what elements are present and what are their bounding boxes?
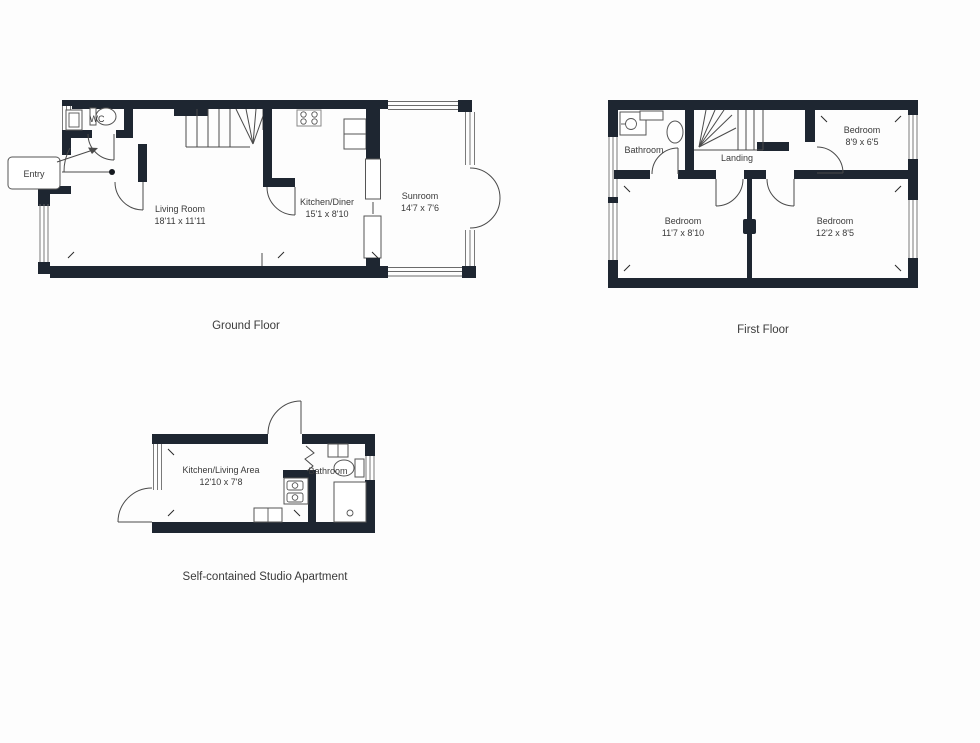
bedroom-left-door xyxy=(716,179,743,206)
sunroom-label: Sunroom xyxy=(402,191,439,201)
studio-sink-unit-icon xyxy=(284,478,308,504)
living-room-label: Living Room xyxy=(155,204,205,214)
bedroom-left-label: Bedroom xyxy=(665,216,702,226)
studio-bath-sink-icon xyxy=(328,444,348,457)
ground-floor-plan: Entry xyxy=(8,100,500,332)
entry-label: Entry xyxy=(23,169,45,179)
studio-kitchen-dims: 12'10 x 7'8 xyxy=(200,477,243,487)
floorplan-page: Entry xyxy=(0,0,980,743)
hall-door xyxy=(115,182,143,210)
first-floor-caption: First Floor xyxy=(737,324,789,336)
studio-plan: Kitchen/Living Area 12'10 x 7'8 Bathroom… xyxy=(118,401,376,583)
studio-shower-icon xyxy=(334,482,366,522)
living-room-dims: 18'11 x 11'11 xyxy=(155,216,206,226)
sunroom-windows xyxy=(388,100,476,278)
bedroom-left-dims: 11'7 x 8'10 xyxy=(662,228,704,238)
bedroom-right-dims: 12'2 x 8'5 xyxy=(816,228,854,238)
studio-caption: Self-contained Studio Apartment xyxy=(183,571,349,583)
wc-label: WC xyxy=(90,114,105,124)
studio-top-door xyxy=(268,401,301,434)
sunroom-french-doors xyxy=(470,168,500,228)
studio-entrance-door xyxy=(118,488,152,522)
studio-kitchen-label: Kitchen/Living Area xyxy=(182,465,259,475)
first-floor-plan: Bathroom Landing Bedroom 8'9 x 6'5 Bedro… xyxy=(607,100,919,336)
entry-callout: Entry xyxy=(8,148,98,190)
studio-counter-icon xyxy=(254,508,282,522)
hob-icon xyxy=(297,110,321,126)
bedroom-right-door xyxy=(767,179,794,206)
floorplan-canvas: Entry xyxy=(0,0,980,743)
bathroom-label-first: Bathroom xyxy=(624,145,663,155)
sunroom-dims: 14'7 x 7'6 xyxy=(401,203,439,213)
kitchen-door xyxy=(267,187,295,215)
bedroom-right-label: Bedroom xyxy=(817,216,854,226)
stairs-icon xyxy=(174,109,263,147)
studio-bathroom-label: Bathroom xyxy=(308,466,347,476)
bedroom-small-label: Bedroom xyxy=(844,125,881,135)
wc-sink-icon xyxy=(66,110,82,130)
kitchen-diner-label: Kitchen/Diner xyxy=(300,197,354,207)
kitchen-counter-icon xyxy=(344,119,366,149)
bedroom-small-door xyxy=(817,147,843,173)
kitchen-diner-dims: 15'1 x 8'10 xyxy=(306,209,349,219)
bedroom-small-dims: 8'9 x 6'5 xyxy=(846,137,879,147)
landing-label: Landing xyxy=(721,153,753,163)
stairs-first-icon xyxy=(694,110,763,150)
ground-floor-caption: Ground Floor xyxy=(212,320,280,332)
